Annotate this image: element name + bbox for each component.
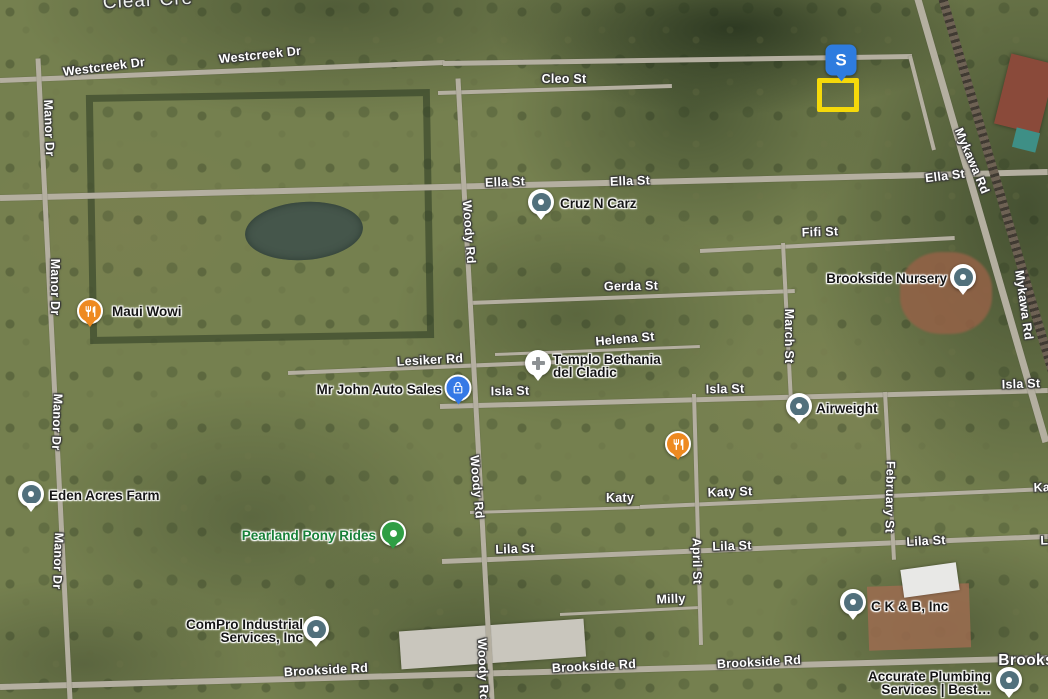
selection-rectangle [817,78,859,112]
generic-pin[interactable] [996,667,1022,693]
place-disc [1000,671,1019,690]
restaurant-pin[interactable] [665,431,691,457]
place-disc [790,397,809,416]
poi-label[interactable]: Accurate PlumbingServices | Best… [868,670,991,696]
place-dot-icon [796,403,802,409]
restaurant-pin[interactable] [77,298,103,324]
place-disc [22,485,41,504]
fork-knife-icon [84,305,97,318]
generic-pin[interactable] [786,393,812,419]
poi-label[interactable]: Cruz N Carz [560,197,637,210]
auto-pin[interactable] [445,375,472,402]
place-dot-icon [538,199,544,205]
place-dot-icon [313,626,319,632]
generic-pin[interactable] [303,616,329,642]
s-marker-label: S [835,50,846,70]
cross-icon [532,357,545,370]
padlock-icon [452,382,465,395]
place-dot-icon [850,599,856,605]
generic-pin[interactable] [528,189,554,215]
place-dot-icon [960,274,966,280]
fork-knife-icon [672,438,685,451]
poi-label[interactable]: C K & B, Inc [871,600,948,613]
place-disc [532,193,551,212]
place-disc [954,268,973,287]
attraction-pin[interactable] [380,520,406,546]
church-pin[interactable] [525,350,551,376]
generic-pin[interactable] [840,589,866,615]
poi-label[interactable]: Mr John Auto Sales [316,383,442,396]
place-dot-icon [1006,677,1012,683]
poi-label[interactable]: Pearland Pony Rides [242,529,376,542]
generic-pin[interactable] [18,481,44,507]
poi-label[interactable]: Brookside Nursery [826,272,947,285]
poi-label[interactable]: ComPro IndustrialServices, Inc [186,618,303,644]
s-marker[interactable]: S [826,45,857,76]
poi-label[interactable]: Eden Acres Farm [49,489,160,502]
generic-pin[interactable] [950,264,976,290]
place-dot-icon [28,491,34,497]
map-canvas[interactable]: Clear CreWestcreek DrWestcreek DrCleo St… [0,0,1048,699]
poi-label[interactable]: Maui Wowi [112,305,182,318]
poi-label[interactable]: Templo Bethaniadel Cladic [553,353,661,379]
place-disc [844,593,863,612]
poi-label[interactable]: Airweight [816,402,878,415]
poi-layer: Maui WowiCruz N CarzBrookside NurseryTem… [0,0,1048,699]
place-disc [307,620,326,639]
place-dot-icon [390,530,397,537]
